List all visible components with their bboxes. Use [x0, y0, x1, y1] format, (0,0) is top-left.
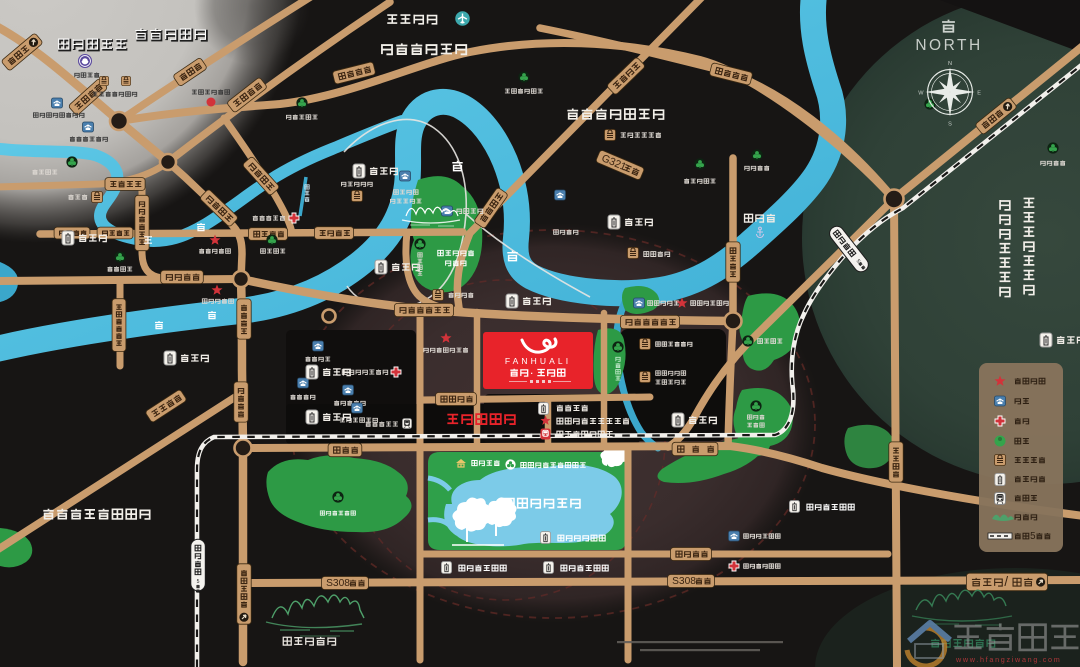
svg-text:·: · — [530, 365, 534, 379]
svg-text:S: S — [948, 122, 952, 128]
svg-text:W: W — [918, 90, 924, 96]
svg-text:NORTH: NORTH — [915, 37, 982, 54]
svg-text:/: / — [1004, 574, 1008, 589]
svg-text:www.hfangziwang.com: www.hfangziwang.com — [955, 655, 1061, 664]
svg-text:S308: S308 — [672, 576, 696, 587]
svg-text:E: E — [977, 90, 981, 96]
svg-text:S308: S308 — [326, 578, 350, 589]
svg-text:5: 5 — [1030, 531, 1035, 542]
svg-text:FANHUALI: FANHUALI — [505, 356, 571, 366]
svg-text:5: 5 — [197, 579, 200, 585]
svg-text:N: N — [948, 61, 952, 67]
